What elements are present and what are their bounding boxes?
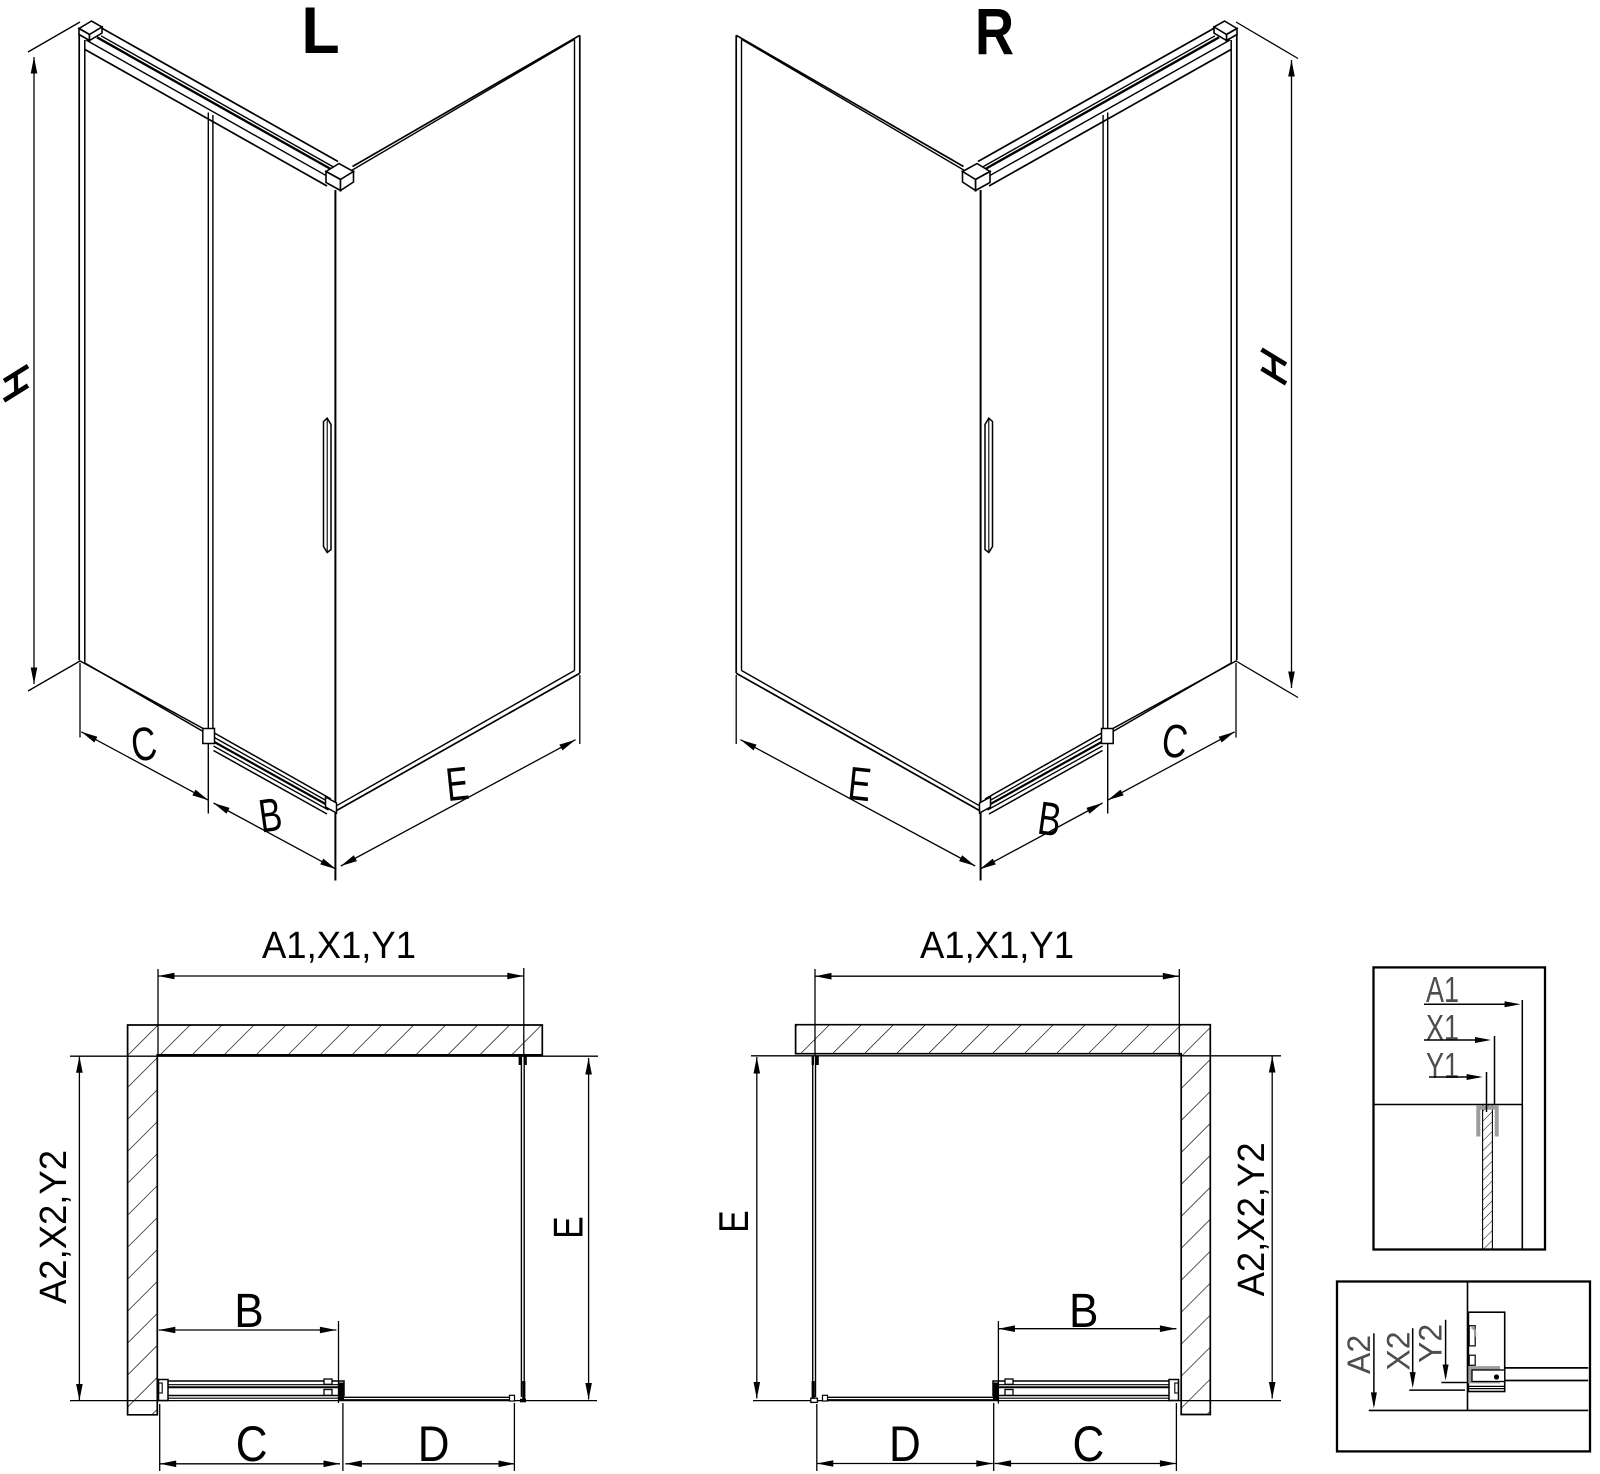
svg-text:B: B [1069, 1283, 1098, 1337]
svg-text:B: B [234, 1283, 263, 1337]
svg-text:X2: X2 [1380, 1331, 1416, 1370]
svg-text:A2: A2 [1341, 1335, 1377, 1374]
svg-text:D: D [889, 1415, 921, 1471]
svg-text:E: E [546, 1216, 592, 1238]
svg-text:Y2: Y2 [1412, 1324, 1448, 1363]
svg-text:R: R [975, 0, 1014, 68]
svg-text:Y1: Y1 [1426, 1045, 1459, 1086]
svg-text:A2,X2,Y2: A2,X2,Y2 [31, 1150, 74, 1304]
svg-text:X1: X1 [1426, 1007, 1459, 1048]
svg-text:E: E [712, 1210, 758, 1232]
svg-text:C: C [236, 1415, 268, 1471]
svg-text:A2,X2,Y2: A2,X2,Y2 [1229, 1142, 1272, 1296]
svg-text:D: D [418, 1415, 450, 1471]
svg-text:A1,X1,Y1: A1,X1,Y1 [262, 923, 416, 966]
svg-text:A1,X1,Y1: A1,X1,Y1 [920, 923, 1074, 966]
svg-text:L: L [301, 0, 339, 67]
svg-text:C: C [1073, 1415, 1105, 1471]
